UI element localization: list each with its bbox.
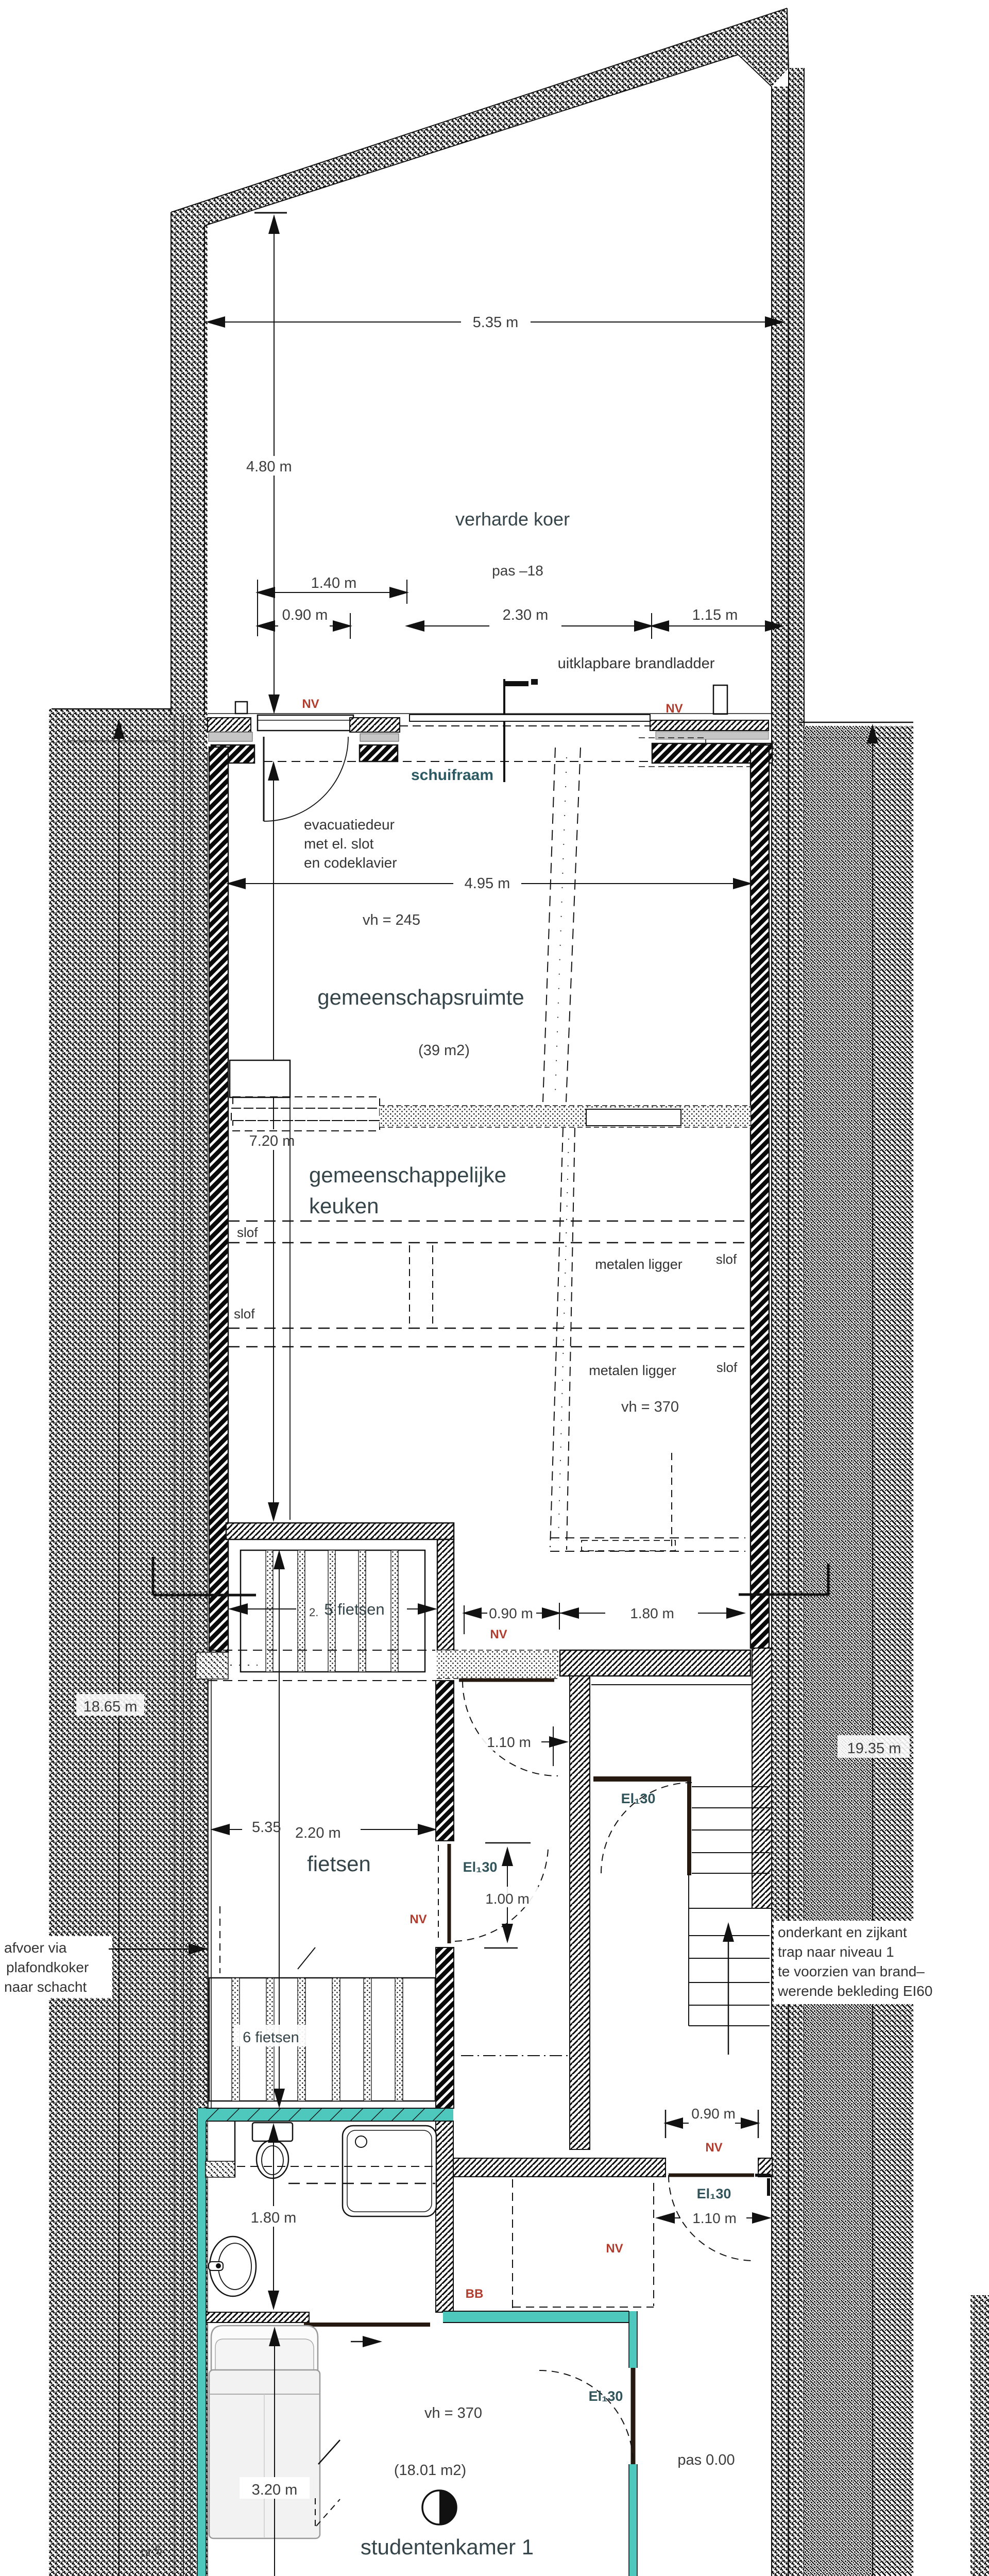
svg-text:18.65 m: 18.65 m <box>83 1699 138 1715</box>
svg-text:BB: BB <box>466 2287 484 2301</box>
svg-text:met el. slot: met el. slot <box>304 836 374 852</box>
svg-text:plafondkoker: plafondkoker <box>6 1959 89 1975</box>
svg-text:El₁30: El₁30 <box>589 2388 623 2404</box>
svg-text:El₁30: El₁30 <box>621 1791 656 1806</box>
svg-text:schuifraam: schuifraam <box>411 767 493 784</box>
svg-text:7.20 m: 7.20 m <box>249 1133 295 1149</box>
svg-text:slof: slof <box>717 1360 738 1375</box>
svg-text:(18.01 m2): (18.01 m2) <box>394 2462 466 2479</box>
svg-text:gemeenschappelijke: gemeenschappelijke <box>309 1163 506 1187</box>
svg-text:NV: NV <box>490 1628 507 1641</box>
svg-text:1.40 m: 1.40 m <box>311 575 357 591</box>
svg-text:metalen ligger: metalen ligger <box>589 1363 676 1378</box>
svg-text:slof: slof <box>716 1251 737 1267</box>
svg-text:vh = 245: vh = 245 <box>363 912 420 928</box>
svg-text:5 fietsen: 5 fietsen <box>324 1600 384 1618</box>
svg-text:4.95 m: 4.95 m <box>465 875 510 892</box>
svg-text:0.90 m: 0.90 m <box>691 2106 736 2122</box>
svg-text:verharde koer: verharde koer <box>455 509 570 530</box>
svg-text:te voorzien van brand–: te voorzien van brand– <box>778 1963 925 1979</box>
svg-text:5.35: 5.35 <box>252 1819 281 1836</box>
svg-text:keuken: keuken <box>309 1194 379 1218</box>
svg-text:onderkant en zijkant: onderkant en zijkant <box>778 1924 907 1940</box>
svg-text:naar schacht: naar schacht <box>4 1979 87 1995</box>
svg-text:vh = 370: vh = 370 <box>424 2405 482 2421</box>
svg-text:1.80 m: 1.80 m <box>630 1605 674 1621</box>
svg-text:slof: slof <box>237 1225 258 1240</box>
svg-text:metalen ligger: metalen ligger <box>595 1257 683 1272</box>
svg-text:5.35 m: 5.35 m <box>473 314 519 331</box>
svg-text:afvoer via: afvoer via <box>4 1940 67 1956</box>
svg-text:2.: 2. <box>309 1606 318 1619</box>
svg-text:3.20 m: 3.20 m <box>252 2482 298 2498</box>
svg-text:en codeklavier: en codeklavier <box>304 855 397 871</box>
svg-text:NV: NV <box>302 697 319 711</box>
svg-text:slof: slof <box>234 1306 255 1321</box>
svg-text:El₁30: El₁30 <box>463 1859 498 1875</box>
svg-text:NV: NV <box>705 2141 722 2155</box>
svg-text:2.20 m: 2.20 m <box>295 1825 341 1841</box>
svg-text:19.35 m: 19.35 m <box>847 1740 901 1757</box>
svg-text:uitklapbare brandladder: uitklapbare brandladder <box>558 655 715 672</box>
svg-text:(39 m2): (39 m2) <box>418 1042 470 1059</box>
svg-text:1.00 m: 1.00 m <box>485 1891 530 1907</box>
svg-text:1.10 m: 1.10 m <box>692 2210 737 2226</box>
svg-text:trap naar niveau 1: trap naar niveau 1 <box>778 1944 894 1960</box>
svg-text:1.15 m: 1.15 m <box>692 607 738 623</box>
svg-text:6 fietsen: 6 fietsen <box>243 2029 299 2046</box>
svg-text:evacuatiedeur: evacuatiedeur <box>304 817 395 833</box>
svg-text:gemeenschapsruimte: gemeenschapsruimte <box>317 985 524 1009</box>
svg-text:fietsen: fietsen <box>307 1852 371 1876</box>
svg-text:studentenkamer 1: studentenkamer 1 <box>361 2535 534 2559</box>
svg-text:nr 5: nr 5 <box>140 2543 163 2560</box>
svg-text:NV: NV <box>606 2242 623 2256</box>
svg-text:4.80 m: 4.80 m <box>246 459 292 475</box>
svg-text:pas 0.00: pas 0.00 <box>677 2452 735 2468</box>
svg-text:2.30 m: 2.30 m <box>503 607 549 623</box>
svg-text:vh = 370: vh = 370 <box>621 1399 679 1415</box>
svg-text:NV: NV <box>410 1912 427 1926</box>
svg-text:0.90 m: 0.90 m <box>489 1605 533 1621</box>
svg-text:El₁30: El₁30 <box>697 2186 731 2201</box>
svg-text:werende bekleding EI60: werende bekleding EI60 <box>777 1983 932 1999</box>
svg-text:pas –18: pas –18 <box>492 563 543 579</box>
svg-text:1.10 m: 1.10 m <box>487 1734 531 1750</box>
svg-text:0.90 m: 0.90 m <box>282 607 328 623</box>
svg-text:1.80 m: 1.80 m <box>251 2210 297 2226</box>
